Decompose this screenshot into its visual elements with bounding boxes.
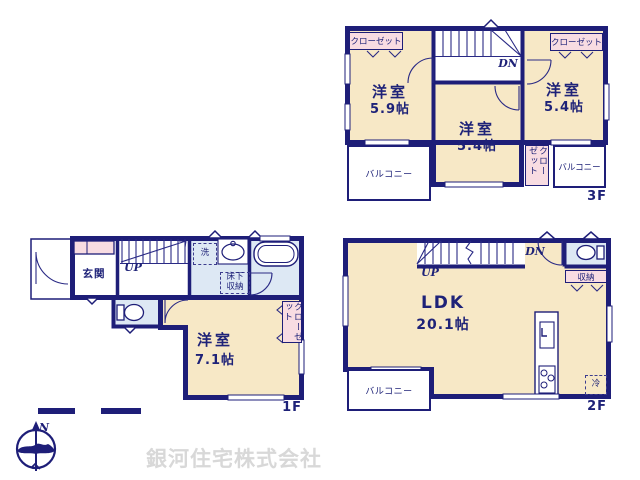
underfloor-storage-label: 床下収納 bbox=[225, 273, 245, 293]
compass-north-label: N bbox=[38, 421, 50, 434]
stairs-up-1f: UP bbox=[120, 262, 146, 274]
storage-2f: 収納 bbox=[565, 270, 607, 283]
floor-label-2f: 2F bbox=[573, 400, 607, 415]
ldk-size: 20.1帖 bbox=[403, 318, 483, 334]
underfloor-storage-1f: 床下収納 bbox=[220, 272, 250, 294]
closet-3f-right: クローゼット bbox=[550, 33, 603, 51]
vent-triangle-3f bbox=[483, 20, 499, 28]
fridge-2f: 冷 bbox=[585, 375, 607, 395]
balcony-3f-right: バルコニー bbox=[553, 145, 606, 188]
closet-label: クローゼット bbox=[527, 146, 547, 185]
closet-label: クローゼット bbox=[551, 36, 602, 48]
laundry-label: 洗 bbox=[201, 249, 210, 259]
closet-label: クローゼット bbox=[282, 302, 302, 342]
laundry-box-1f: 洗 bbox=[193, 243, 217, 265]
floor-label-3f: 3F bbox=[573, 190, 607, 205]
balcony-label: バルコニー bbox=[558, 161, 600, 173]
floor-label-1f: 1F bbox=[268, 401, 302, 416]
sink-icon-1f bbox=[218, 239, 248, 264]
room-3f-right-size: 5.4帖 bbox=[525, 101, 603, 116]
closet-3f-left: クローゼット bbox=[349, 32, 403, 50]
floor-plan-3f: クローゼット クローゼット クローゼット バルコニー バルコニー 洋室 5.9帖… bbox=[345, 24, 611, 208]
floorplan-1f-drawing bbox=[28, 235, 312, 415]
kitchen-counter-2f bbox=[535, 312, 558, 396]
vent-triangle-2f-toilet bbox=[583, 232, 599, 239]
watermark-company-name: 銀河住宅株式会社 bbox=[146, 443, 322, 473]
balcony-label: バルコニー bbox=[365, 384, 412, 397]
compass-bird-shape bbox=[17, 444, 55, 454]
boundary-dash-1 bbox=[38, 408, 75, 414]
room-1f-size: 7.1帖 bbox=[175, 354, 255, 369]
storage-label: 収納 bbox=[577, 271, 594, 283]
closet-1f: クローゼット bbox=[282, 301, 302, 343]
toilet-icon-2f bbox=[577, 246, 604, 260]
room-3f-center-name: 洋室 bbox=[437, 121, 517, 138]
ldk-name: LDK bbox=[403, 294, 483, 313]
bathtub-icon-1f bbox=[254, 242, 298, 266]
stairwell-3f bbox=[435, 28, 521, 82]
toilet-icon-1f bbox=[117, 305, 144, 321]
room-3f-left-size: 5.9帖 bbox=[350, 103, 430, 118]
room-3f-right-name: 洋室 bbox=[525, 82, 603, 99]
entrance-label: 玄関 bbox=[74, 269, 114, 281]
balcony-3f-left: バルコニー bbox=[347, 145, 431, 201]
balcony-2f: バルコニー bbox=[347, 369, 431, 411]
fridge-label: 冷 bbox=[592, 380, 601, 390]
stairs-up-2f: UP bbox=[417, 267, 443, 279]
boundary-dash-2 bbox=[101, 408, 141, 414]
closet-3f-center: クローゼット bbox=[525, 145, 549, 186]
closet-label: クローゼット bbox=[350, 35, 401, 47]
vent-triangle-2f-stair bbox=[539, 232, 555, 239]
room-1f-name: 洋室 bbox=[175, 332, 255, 349]
floor-plan-2f: 収納 バルコニー 冷 UP DN LDK 20.1帖 2F bbox=[343, 236, 615, 414]
room-3f-center-size: 5.4帖 bbox=[437, 140, 517, 155]
balcony-label: バルコニー bbox=[365, 167, 412, 180]
stairs-dn-3f: DN bbox=[493, 58, 523, 70]
floorplan-canvas: クローゼット クローゼット クローゼット バルコニー バルコニー 洋室 5.9帖… bbox=[0, 0, 640, 480]
shoe-cabinet-1f bbox=[74, 241, 114, 254]
porch-1f bbox=[31, 239, 73, 299]
stairs-dn-2f: DN bbox=[521, 246, 549, 258]
compass-icon: N bbox=[8, 418, 66, 476]
floor-plan-1f: 洗 床下収納 クローゼット 玄関 UP 洋室 7.1帖 1F bbox=[28, 235, 312, 415]
room-3f-left-name: 洋室 bbox=[350, 84, 430, 101]
